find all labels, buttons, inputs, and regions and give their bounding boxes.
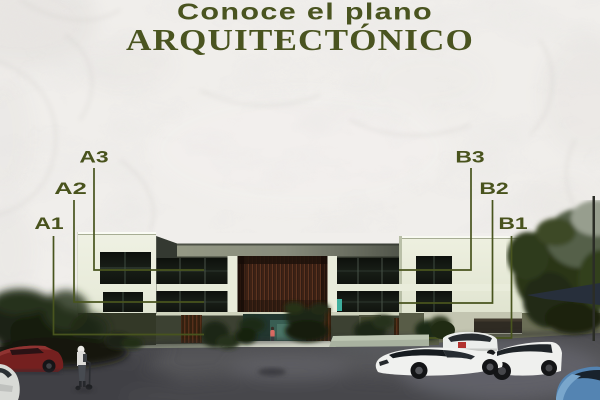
svg-text:B1: B1 (498, 215, 527, 234)
svg-text:Conoce el plano: Conoce el plano (177, 0, 433, 25)
svg-text:A3: A3 (79, 148, 108, 167)
svg-text:ARQUITECTÓNICO: ARQUITECTÓNICO (126, 22, 474, 58)
svg-text:A2: A2 (54, 178, 87, 198)
svg-text:A1: A1 (34, 215, 63, 234)
svg-text:B3: B3 (455, 148, 484, 167)
svg-text:B2: B2 (479, 180, 508, 199)
